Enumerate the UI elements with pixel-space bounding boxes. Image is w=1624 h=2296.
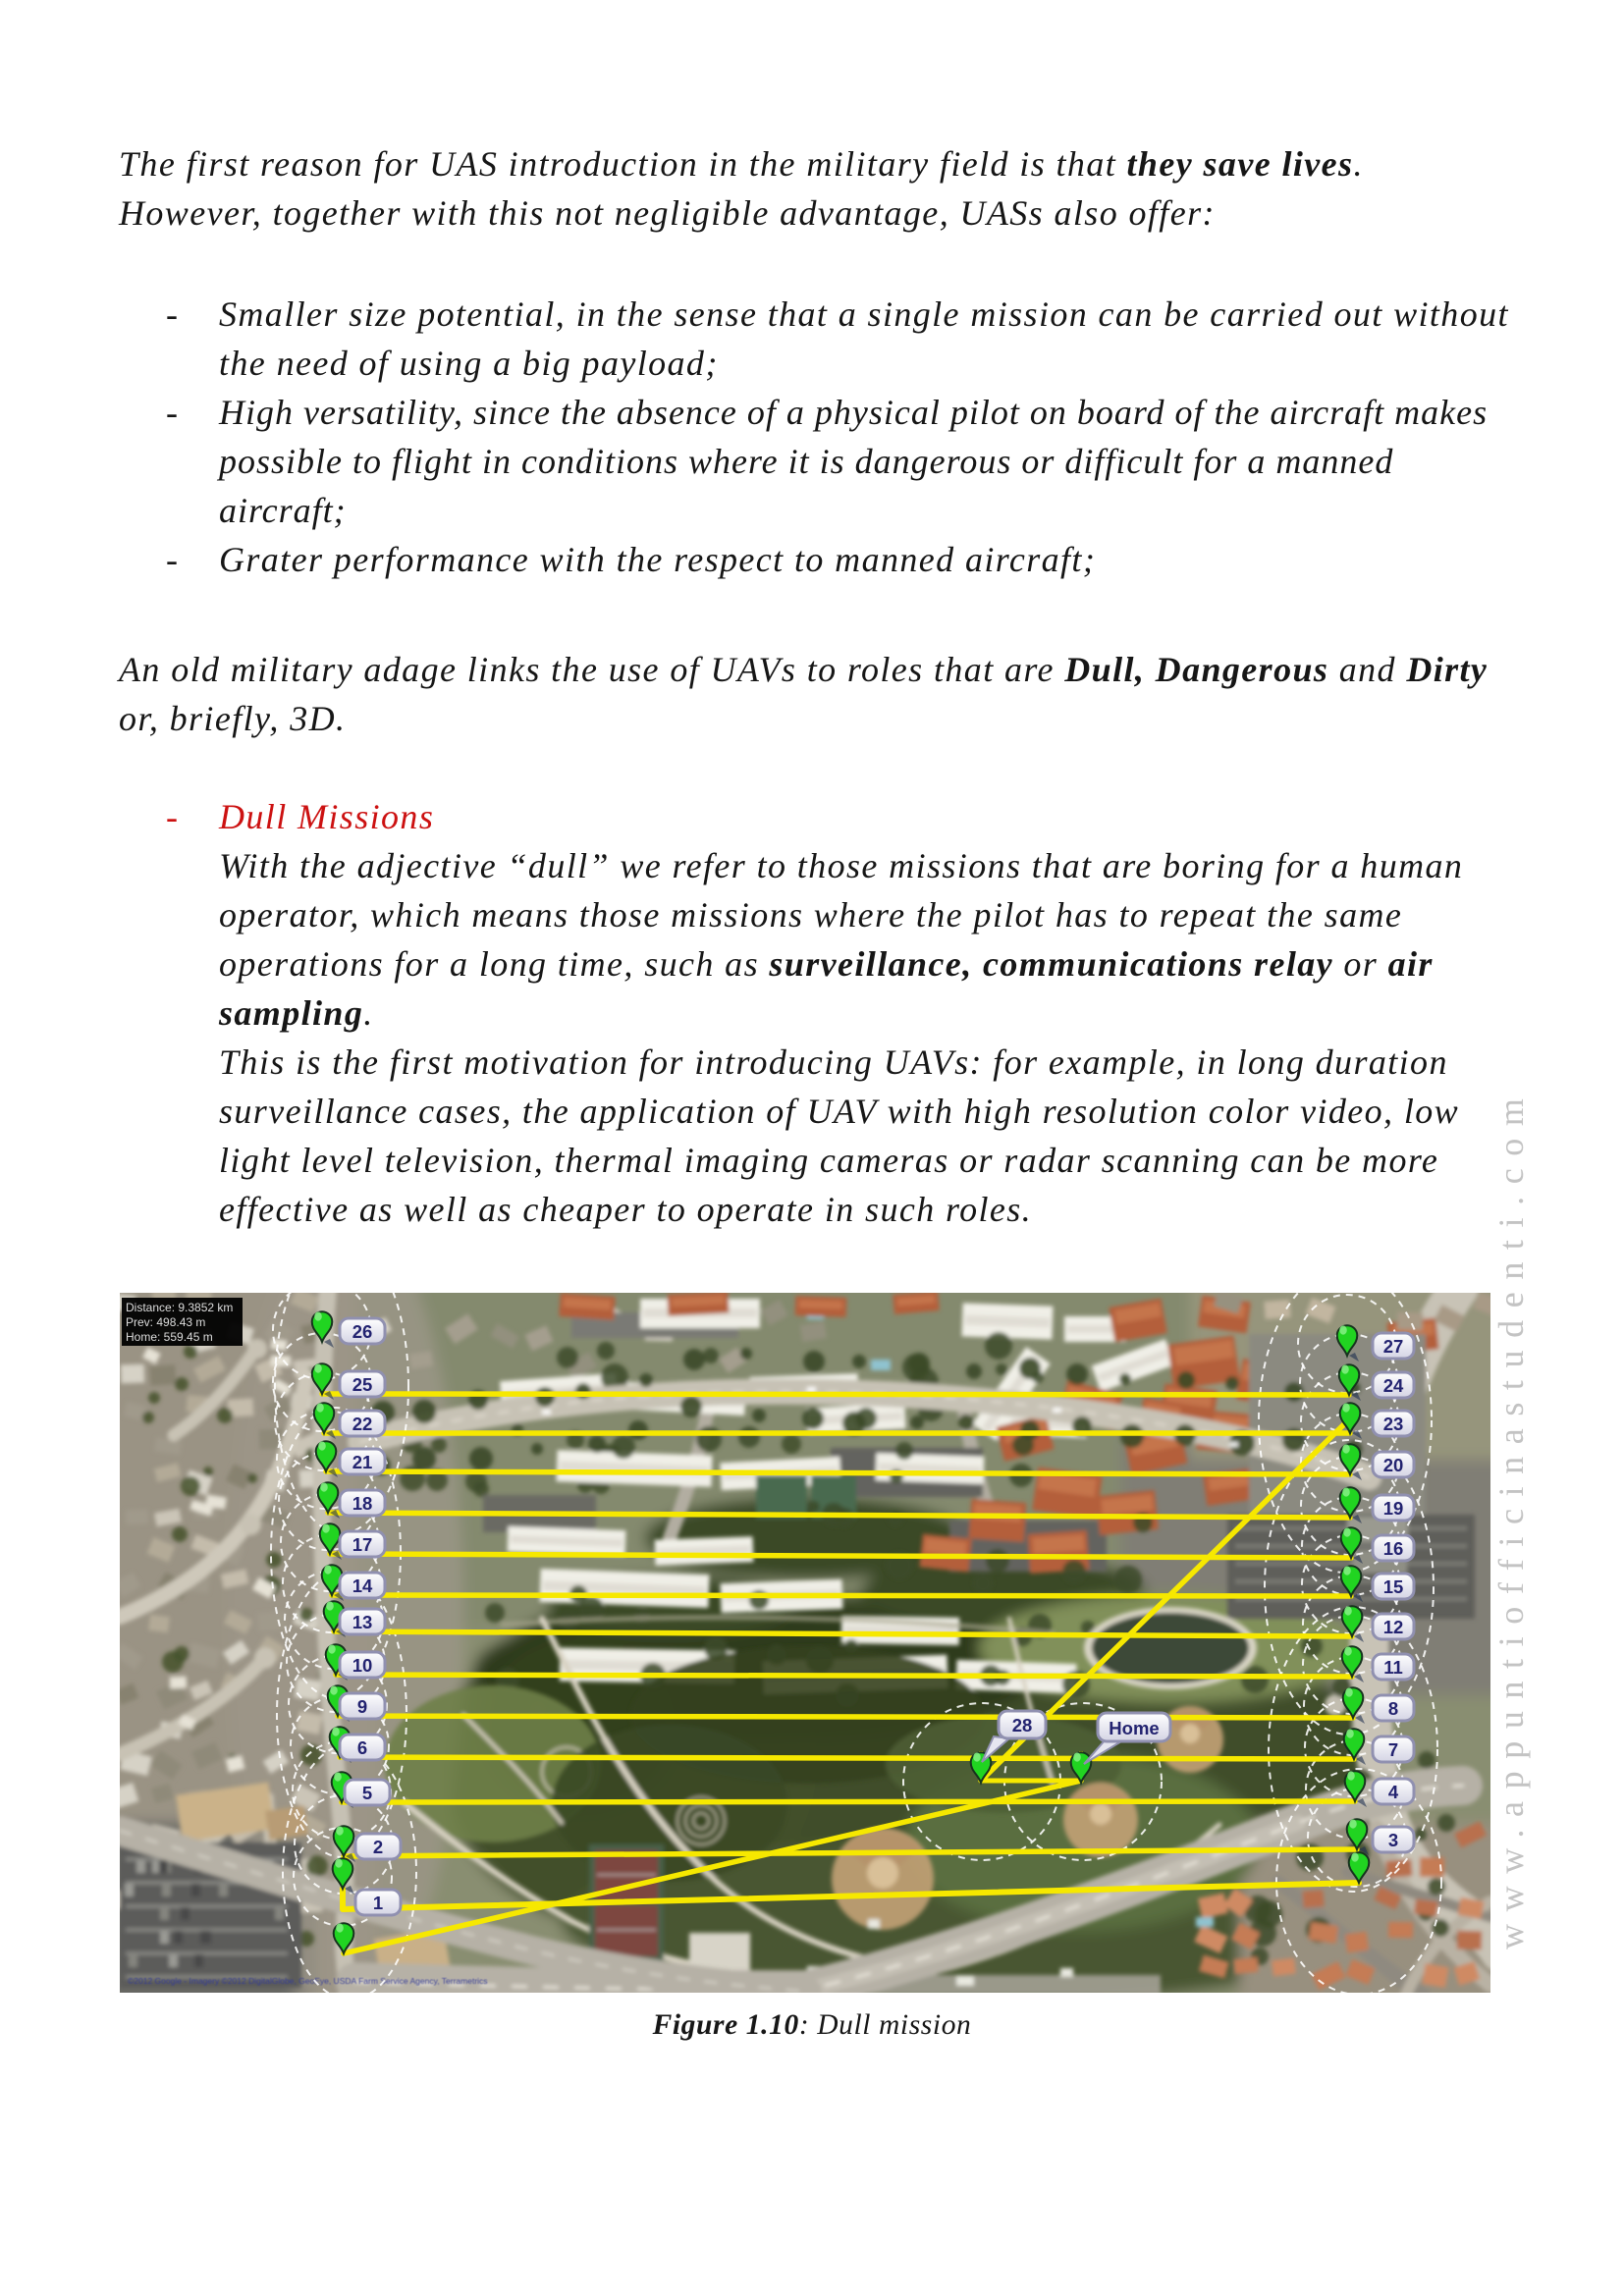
svg-text:5: 5 [362, 1783, 372, 1803]
svg-text:4: 4 [1388, 1782, 1399, 1802]
svg-text:17: 17 [352, 1534, 373, 1555]
svg-text:Home: 559.45 m: Home: 559.45 m [126, 1330, 213, 1344]
svg-text:2: 2 [373, 1837, 383, 1857]
svg-text:13: 13 [352, 1612, 373, 1632]
svg-text:28: 28 [1012, 1715, 1033, 1735]
svg-text:Distance: 9.3852 km: Distance: 9.3852 km [126, 1301, 233, 1314]
svg-text:26: 26 [352, 1321, 373, 1342]
svg-text:9: 9 [357, 1696, 367, 1717]
svg-text:Prev: 498.43 m: Prev: 498.43 m [126, 1315, 205, 1329]
svg-text:6: 6 [357, 1737, 367, 1758]
svg-text:20: 20 [1383, 1455, 1404, 1475]
svg-text:19: 19 [1383, 1498, 1404, 1519]
svg-text:1: 1 [373, 1893, 383, 1913]
svg-text:12: 12 [1383, 1617, 1404, 1637]
svg-text:©2012 Google - Imagery ©2012 D: ©2012 Google - Imagery ©2012 DigitalGlob… [128, 1976, 488, 1986]
svg-text:3: 3 [1388, 1830, 1398, 1850]
svg-text:7: 7 [1388, 1739, 1398, 1760]
svg-text:23: 23 [1383, 1414, 1404, 1434]
svg-text:24: 24 [1383, 1375, 1404, 1396]
svg-text:10: 10 [352, 1655, 373, 1676]
svg-text:27: 27 [1383, 1336, 1404, 1357]
svg-text:16: 16 [1383, 1538, 1404, 1559]
svg-text:21: 21 [352, 1452, 373, 1472]
svg-text:22: 22 [352, 1414, 373, 1434]
svg-text:Home: Home [1109, 1718, 1159, 1738]
svg-text:18: 18 [352, 1493, 373, 1514]
svg-text:8: 8 [1388, 1698, 1398, 1719]
svg-text:14: 14 [352, 1575, 373, 1596]
svg-text:11: 11 [1383, 1657, 1403, 1678]
svg-text:15: 15 [1383, 1576, 1404, 1597]
svg-text:25: 25 [352, 1374, 373, 1395]
